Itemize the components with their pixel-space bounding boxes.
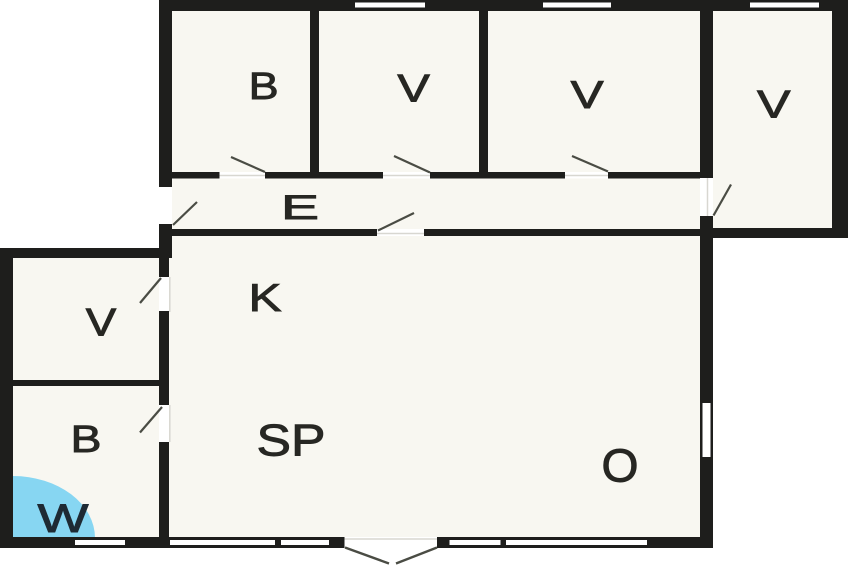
svg-text:B: B <box>71 419 102 461</box>
svg-text:SP: SP <box>257 417 326 466</box>
svg-text:V: V <box>397 68 430 111</box>
svg-text:E: E <box>281 189 319 227</box>
svg-text:V: V <box>757 84 791 127</box>
svg-text:K: K <box>249 277 282 320</box>
svg-text:B: B <box>249 66 279 108</box>
svg-text:W: W <box>38 497 90 541</box>
svg-text:O: O <box>602 440 639 492</box>
svg-text:V: V <box>571 74 604 117</box>
svg-text:V: V <box>86 302 117 345</box>
